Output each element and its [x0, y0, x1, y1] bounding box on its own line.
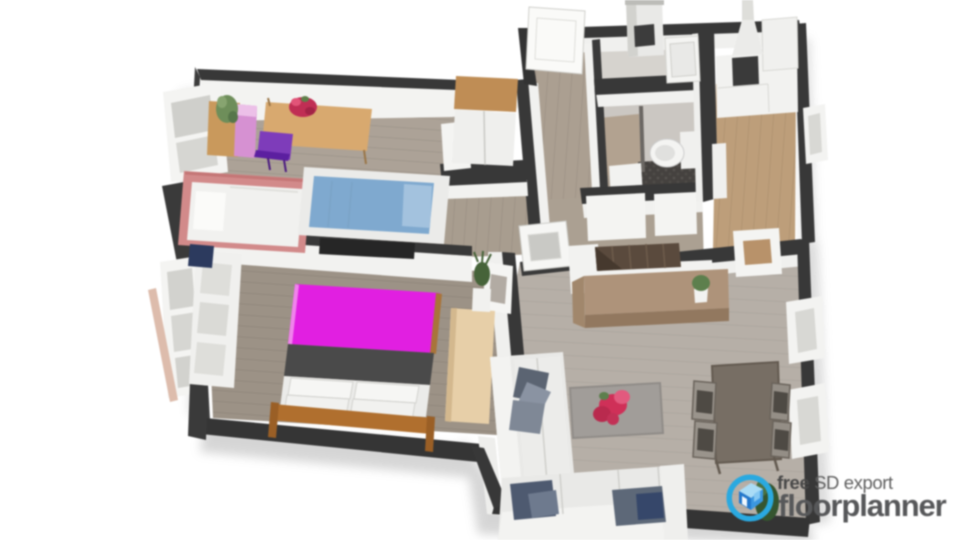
svg-text:floorplanner: floorplanner — [778, 488, 947, 523]
